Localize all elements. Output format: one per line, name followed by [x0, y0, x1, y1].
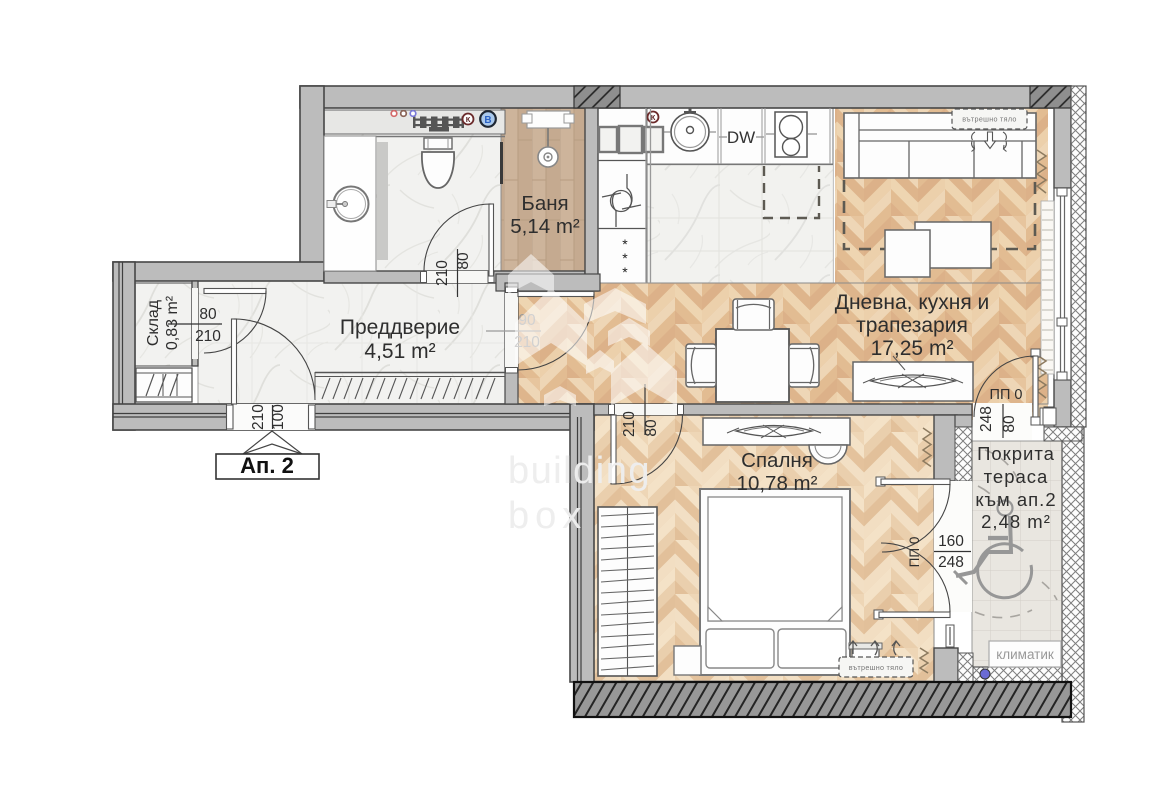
- svg-text:Спалня: Спалня: [741, 449, 813, 472]
- svg-text:10,78 m²: 10,78 m²: [737, 472, 818, 495]
- svg-text:4,51 m²: 4,51 m²: [364, 340, 435, 363]
- svg-text:2,48 m²: 2,48 m²: [981, 511, 1051, 532]
- svg-text:210: 210: [195, 328, 221, 345]
- svg-text:ПП 0: ПП 0: [990, 387, 1023, 403]
- svg-text:Ап. 2: Ап. 2: [240, 453, 294, 478]
- svg-text:Преддверие: Преддверие: [340, 316, 460, 339]
- svg-text:климатик: климатик: [996, 647, 1054, 662]
- svg-text:box: box: [508, 495, 587, 537]
- svg-text:0,83 m²: 0,83 m²: [164, 295, 181, 350]
- svg-text:248: 248: [978, 406, 995, 432]
- svg-text:100: 100: [270, 404, 287, 430]
- svg-text:DW: DW: [727, 128, 755, 147]
- svg-text:К: К: [651, 113, 656, 122]
- svg-text:ПП 0: ПП 0: [907, 537, 922, 568]
- svg-text:5,14 m²: 5,14 m²: [510, 215, 580, 238]
- svg-text:building: building: [508, 450, 651, 492]
- svg-text:80: 80: [643, 419, 660, 437]
- svg-text:К: К: [466, 115, 471, 124]
- svg-text:трапезария: трапезария: [856, 314, 968, 337]
- svg-text:вътрешно тяло: вътрешно тяло: [849, 663, 903, 672]
- svg-text:210: 210: [434, 260, 451, 286]
- svg-text:Склад: Склад: [145, 299, 162, 346]
- svg-text:*: *: [622, 264, 628, 280]
- svg-text:Баня: Баня: [521, 192, 568, 215]
- svg-text:В: В: [484, 115, 491, 126]
- svg-text:160: 160: [938, 533, 964, 550]
- svg-text:17,25 m²: 17,25 m²: [871, 337, 954, 360]
- svg-text:вътрешно тяло: вътрешно тяло: [962, 115, 1016, 124]
- svg-text:80: 80: [455, 252, 472, 270]
- svg-text:80: 80: [1001, 415, 1018, 433]
- svg-text:тераса: тераса: [984, 466, 1049, 487]
- svg-text:210: 210: [621, 411, 638, 437]
- svg-text:210: 210: [250, 404, 267, 430]
- svg-text:80: 80: [199, 306, 217, 323]
- svg-text:248: 248: [938, 554, 964, 571]
- svg-text:към ап.2: към ап.2: [975, 489, 1056, 510]
- svg-text:Покрита: Покрита: [977, 443, 1055, 464]
- svg-text:Дневна, кухня и: Дневна, кухня и: [835, 291, 990, 314]
